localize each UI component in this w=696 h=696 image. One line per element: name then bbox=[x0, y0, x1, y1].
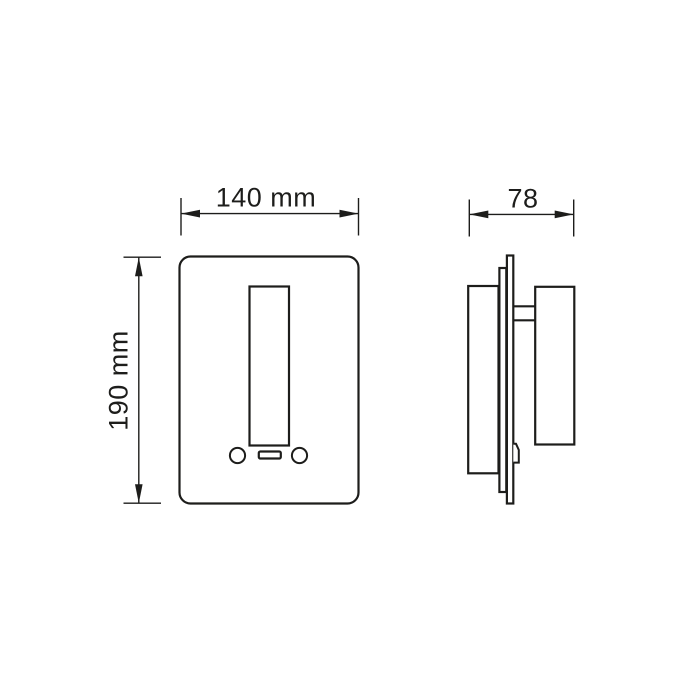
height-dimension: 190 mm bbox=[104, 257, 162, 503]
faceplate-side bbox=[507, 256, 513, 504]
button-right bbox=[292, 448, 307, 463]
height-dimension-label: 190 mm bbox=[104, 330, 134, 431]
dim-arrow-right-icon bbox=[555, 211, 574, 219]
depth-dimension: 78 bbox=[469, 184, 573, 237]
clip-detail bbox=[513, 444, 519, 463]
dim-arrow-left-icon bbox=[181, 210, 200, 218]
width-dimension-label: 140 mm bbox=[216, 183, 317, 213]
lamp-head-side bbox=[535, 287, 574, 445]
technical-drawing: 140 mm 190 mm bbox=[0, 0, 696, 696]
dim-arrow-left-icon bbox=[469, 211, 488, 219]
depth-dimension-label: 78 bbox=[507, 184, 538, 214]
dim-arrow-down-icon bbox=[135, 484, 143, 503]
wall-box-side bbox=[468, 286, 498, 473]
dim-arrow-right-icon bbox=[340, 210, 359, 218]
width-dimension: 140 mm bbox=[181, 183, 359, 236]
usb-port bbox=[259, 452, 281, 459]
dim-arrow-up-icon bbox=[135, 257, 143, 276]
back-plate-side bbox=[499, 268, 506, 492]
button-left bbox=[230, 448, 245, 463]
side-view bbox=[468, 256, 574, 504]
front-view bbox=[180, 257, 359, 504]
light-bar bbox=[250, 287, 290, 446]
drawing-canvas: 140 mm 190 mm bbox=[0, 0, 696, 696]
